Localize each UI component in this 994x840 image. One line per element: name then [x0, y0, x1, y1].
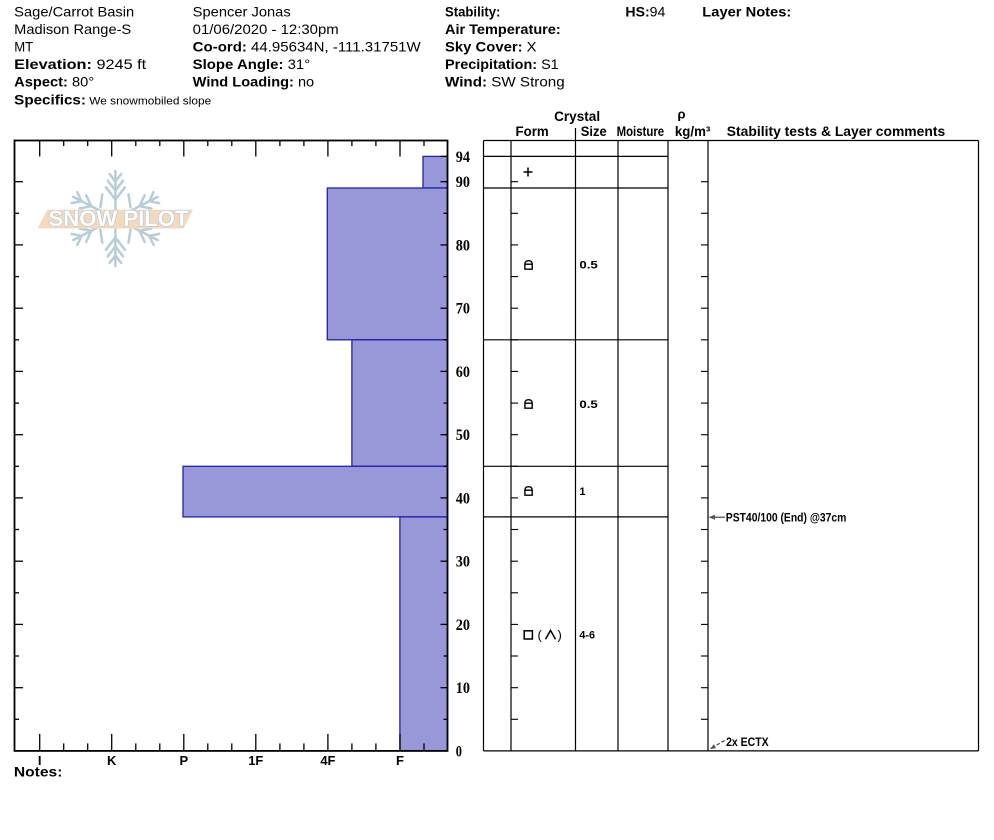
svg-text:F: F: [396, 753, 404, 768]
svg-text:1F: 1F: [248, 753, 263, 768]
svg-text:PST40/100 (End) @37cm: PST40/100 (End) @37cm: [726, 513, 847, 525]
svg-text:Stability tests & Layer commen: Stability tests & Layer comments: [727, 123, 946, 139]
svg-text:Wind: SW Strong: Wind: SW Strong: [445, 75, 565, 90]
svg-text:kg/m³: kg/m³: [675, 123, 711, 139]
svg-text:): ): [558, 628, 562, 643]
svg-text:Specifics: We snowmobiled slop: Specifics: We snowmobiled slope: [14, 93, 211, 108]
svg-text:30: 30: [456, 554, 470, 571]
svg-text:HS:94: HS:94: [625, 5, 665, 20]
svg-text:40: 40: [456, 490, 470, 507]
svg-text:Air Temperature:: Air Temperature:: [445, 22, 561, 37]
svg-text:Aspect: 80°: Aspect: 80°: [14, 75, 94, 90]
svg-text:Madison Range-S: Madison Range-S: [14, 22, 131, 37]
svg-text:Spencer Jonas: Spencer Jonas: [193, 5, 291, 20]
svg-text:90: 90: [456, 174, 470, 191]
svg-text:MT: MT: [14, 40, 34, 55]
svg-text:80: 80: [456, 237, 470, 254]
svg-text:P: P: [179, 753, 188, 768]
svg-text:Moisture: Moisture: [617, 123, 665, 139]
svg-text:70: 70: [456, 301, 470, 318]
svg-text:2x ECTX: 2x ECTX: [726, 737, 769, 749]
svg-text:Size: Size: [581, 123, 607, 139]
svg-text:0.5: 0.5: [579, 399, 597, 411]
svg-text:SNOW PILOT: SNOW PILOT: [49, 206, 190, 231]
svg-text:Sky Cover: X: Sky Cover: X: [445, 40, 537, 55]
svg-text:4F: 4F: [320, 753, 335, 768]
svg-text:01/06/2020 - 12:30pm: 01/06/2020 - 12:30pm: [193, 22, 339, 37]
svg-text:Sage/Carrot Basin: Sage/Carrot Basin: [14, 5, 134, 20]
svg-text:(: (: [538, 628, 543, 643]
svg-text:Elevation: 9245 ft: Elevation: 9245 ft: [14, 57, 146, 72]
svg-text:K: K: [107, 753, 117, 768]
svg-text:0.5: 0.5: [579, 260, 597, 272]
svg-text:Co-ord: 44.95634N, -111.31751W: Co-ord: 44.95634N, -111.31751W: [193, 40, 421, 55]
svg-text:10: 10: [456, 680, 470, 697]
svg-text:Layer Notes:: Layer Notes:: [702, 5, 791, 20]
svg-text:0: 0: [456, 743, 462, 760]
svg-text:1: 1: [579, 486, 585, 498]
svg-text:20: 20: [456, 617, 470, 634]
svg-text:Wind Loading: no: Wind Loading: no: [193, 75, 315, 90]
svg-text:Form: Form: [516, 123, 549, 139]
svg-text:60: 60: [456, 364, 470, 381]
svg-text:Notes:: Notes:: [14, 764, 63, 780]
svg-text:94: 94: [456, 149, 470, 166]
svg-text:Precipitation: S1: Precipitation: S1: [445, 57, 559, 72]
svg-text:Slope Angle: 31°: Slope Angle: 31°: [193, 57, 310, 72]
svg-text:4-6: 4-6: [579, 630, 595, 642]
svg-text:50: 50: [456, 427, 470, 444]
svg-text:ρ: ρ: [677, 107, 685, 122]
svg-text:Crystal: Crystal: [554, 108, 600, 124]
svg-text:Stability:: Stability:: [445, 5, 500, 20]
